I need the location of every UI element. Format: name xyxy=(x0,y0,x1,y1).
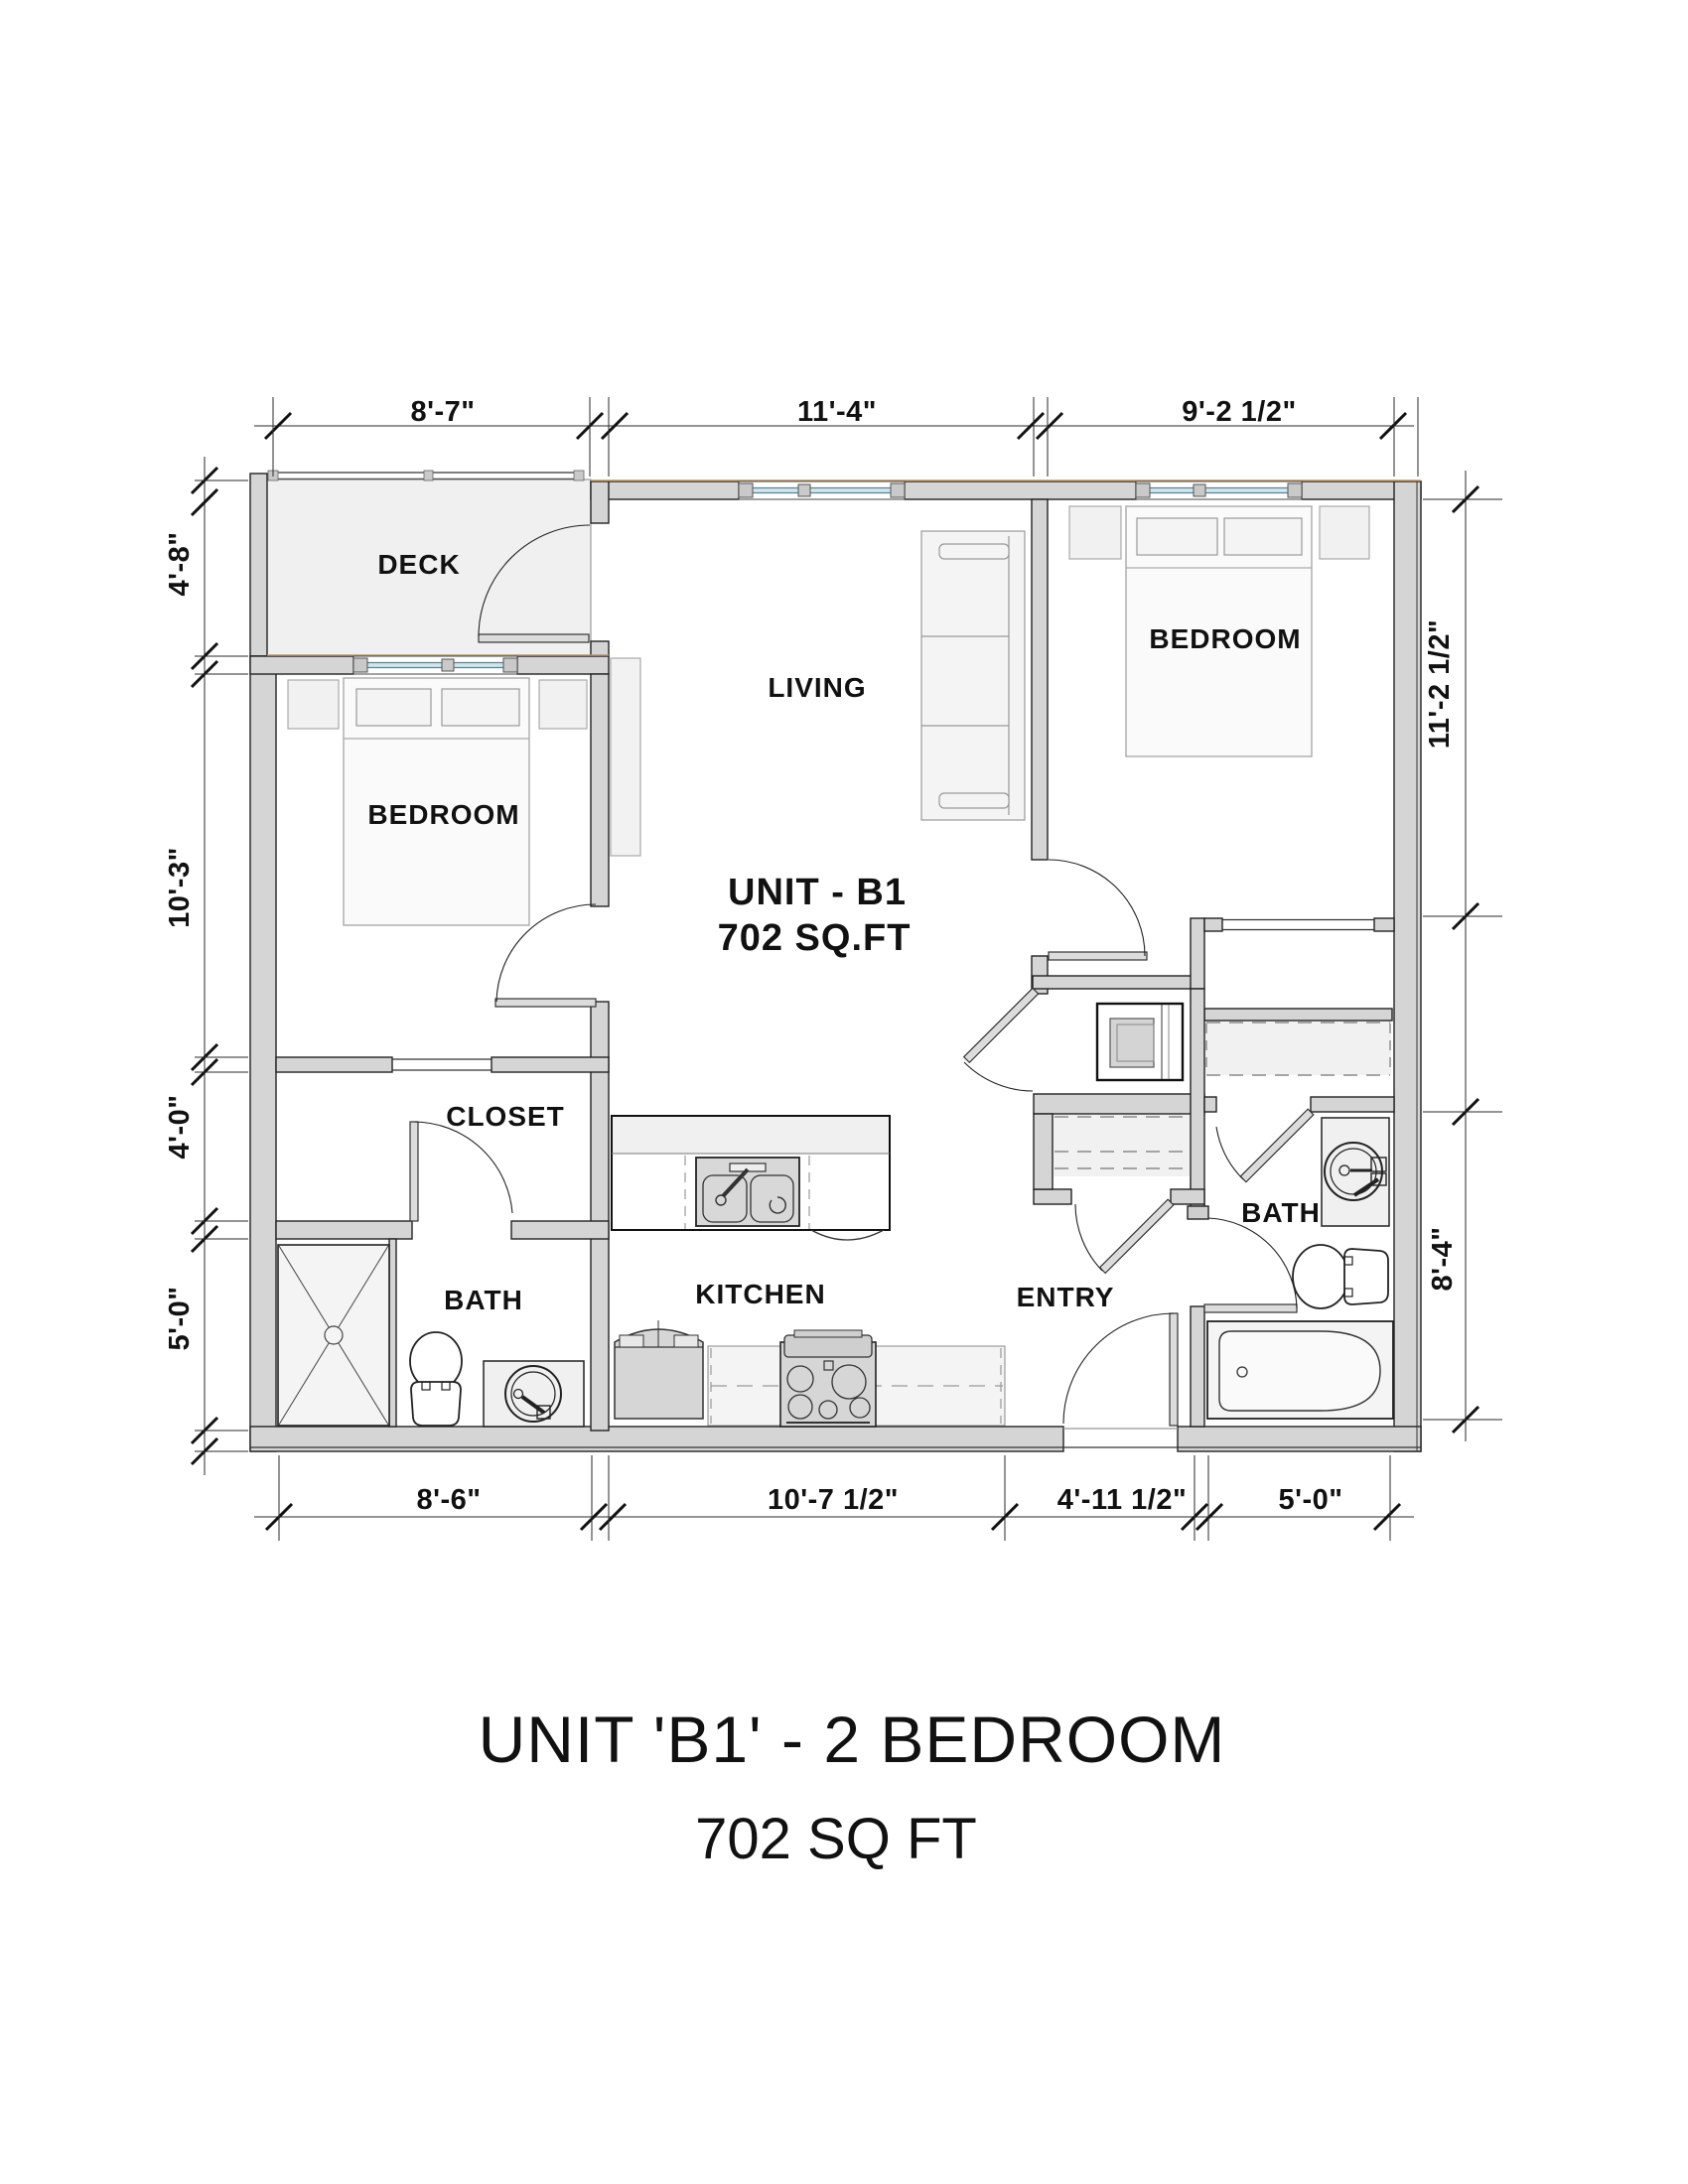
svg-text:11'-4": 11'-4" xyxy=(797,396,877,428)
svg-text:4'-8": 4'-8" xyxy=(164,531,196,596)
svg-text:DECK: DECK xyxy=(377,549,460,580)
svg-text:5'-0": 5'-0" xyxy=(164,1286,196,1350)
svg-text:5'-0": 5'-0" xyxy=(1278,1484,1342,1516)
svg-text:4'-0": 4'-0" xyxy=(164,1094,196,1159)
svg-text:UNIT 'B1' - 2 BEDROOM: UNIT 'B1' - 2 BEDROOM xyxy=(479,1703,1226,1776)
svg-text:BEDROOM: BEDROOM xyxy=(1149,623,1301,654)
svg-text:8'-6": 8'-6" xyxy=(416,1484,481,1516)
svg-text:BATH: BATH xyxy=(444,1285,523,1315)
svg-text:BATH: BATH xyxy=(1241,1197,1321,1228)
svg-text:KITCHEN: KITCHEN xyxy=(695,1279,825,1309)
svg-text:702 SQ.FT: 702 SQ.FT xyxy=(718,917,912,959)
svg-text:4'-11 1/2": 4'-11 1/2" xyxy=(1057,1484,1187,1516)
svg-text:ENTRY: ENTRY xyxy=(1017,1282,1115,1312)
svg-text:LIVING: LIVING xyxy=(768,672,866,703)
svg-text:10'-7 1/2": 10'-7 1/2" xyxy=(768,1484,899,1516)
svg-text:BEDROOM: BEDROOM xyxy=(367,799,519,830)
svg-text:8'-4": 8'-4" xyxy=(1427,1226,1459,1291)
svg-text:10'-3": 10'-3" xyxy=(164,847,196,928)
svg-text:CLOSET: CLOSET xyxy=(446,1101,565,1132)
svg-text:UNIT - B1: UNIT - B1 xyxy=(728,872,907,913)
svg-text:8'-7": 8'-7" xyxy=(410,396,475,428)
svg-text:9'-2 1/2": 9'-2 1/2" xyxy=(1182,396,1296,428)
svg-text:702 SQ FT: 702 SQ FT xyxy=(695,1807,977,1871)
svg-text:11'-2 1/2": 11'-2 1/2" xyxy=(1424,619,1456,749)
